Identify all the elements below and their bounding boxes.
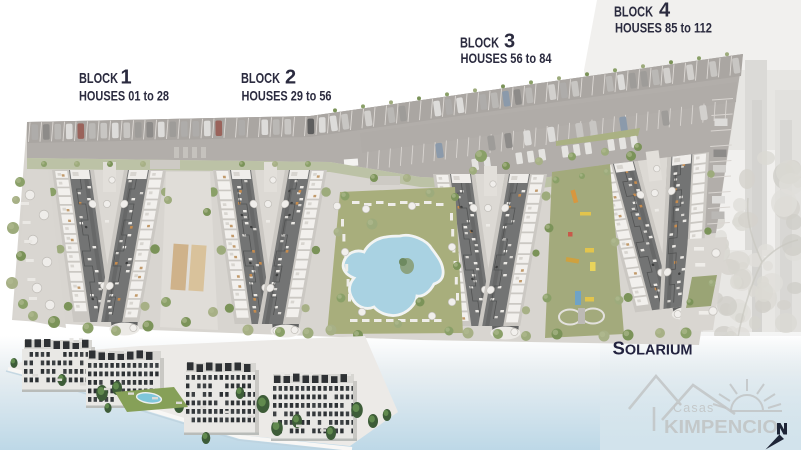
svg-text:BLOCK: BLOCK (460, 35, 499, 52)
svg-text:HOUSES 01 to 28: HOUSES 01 to 28 (79, 89, 169, 104)
svg-text:Casas: Casas (673, 401, 714, 415)
svg-text:3: 3 (504, 31, 515, 53)
svg-text:2: 2 (285, 67, 296, 89)
svg-text:BLOCK: BLOCK (241, 70, 280, 87)
svg-text:HOUSES 85 to 112: HOUSES 85 to 112 (615, 21, 712, 36)
svg-text:HOUSES 56 to 84: HOUSES 56 to 84 (461, 51, 552, 66)
svg-text:1: 1 (121, 67, 132, 89)
svg-text:BLOCK: BLOCK (614, 4, 653, 21)
svg-text:KIMPENCIO: KIMPENCIO (664, 417, 778, 437)
svg-text:4: 4 (659, 0, 671, 22)
svg-text:HOUSES 29 to 56: HOUSES 29 to 56 (242, 89, 332, 104)
svg-text:BLOCK: BLOCK (79, 70, 118, 87)
